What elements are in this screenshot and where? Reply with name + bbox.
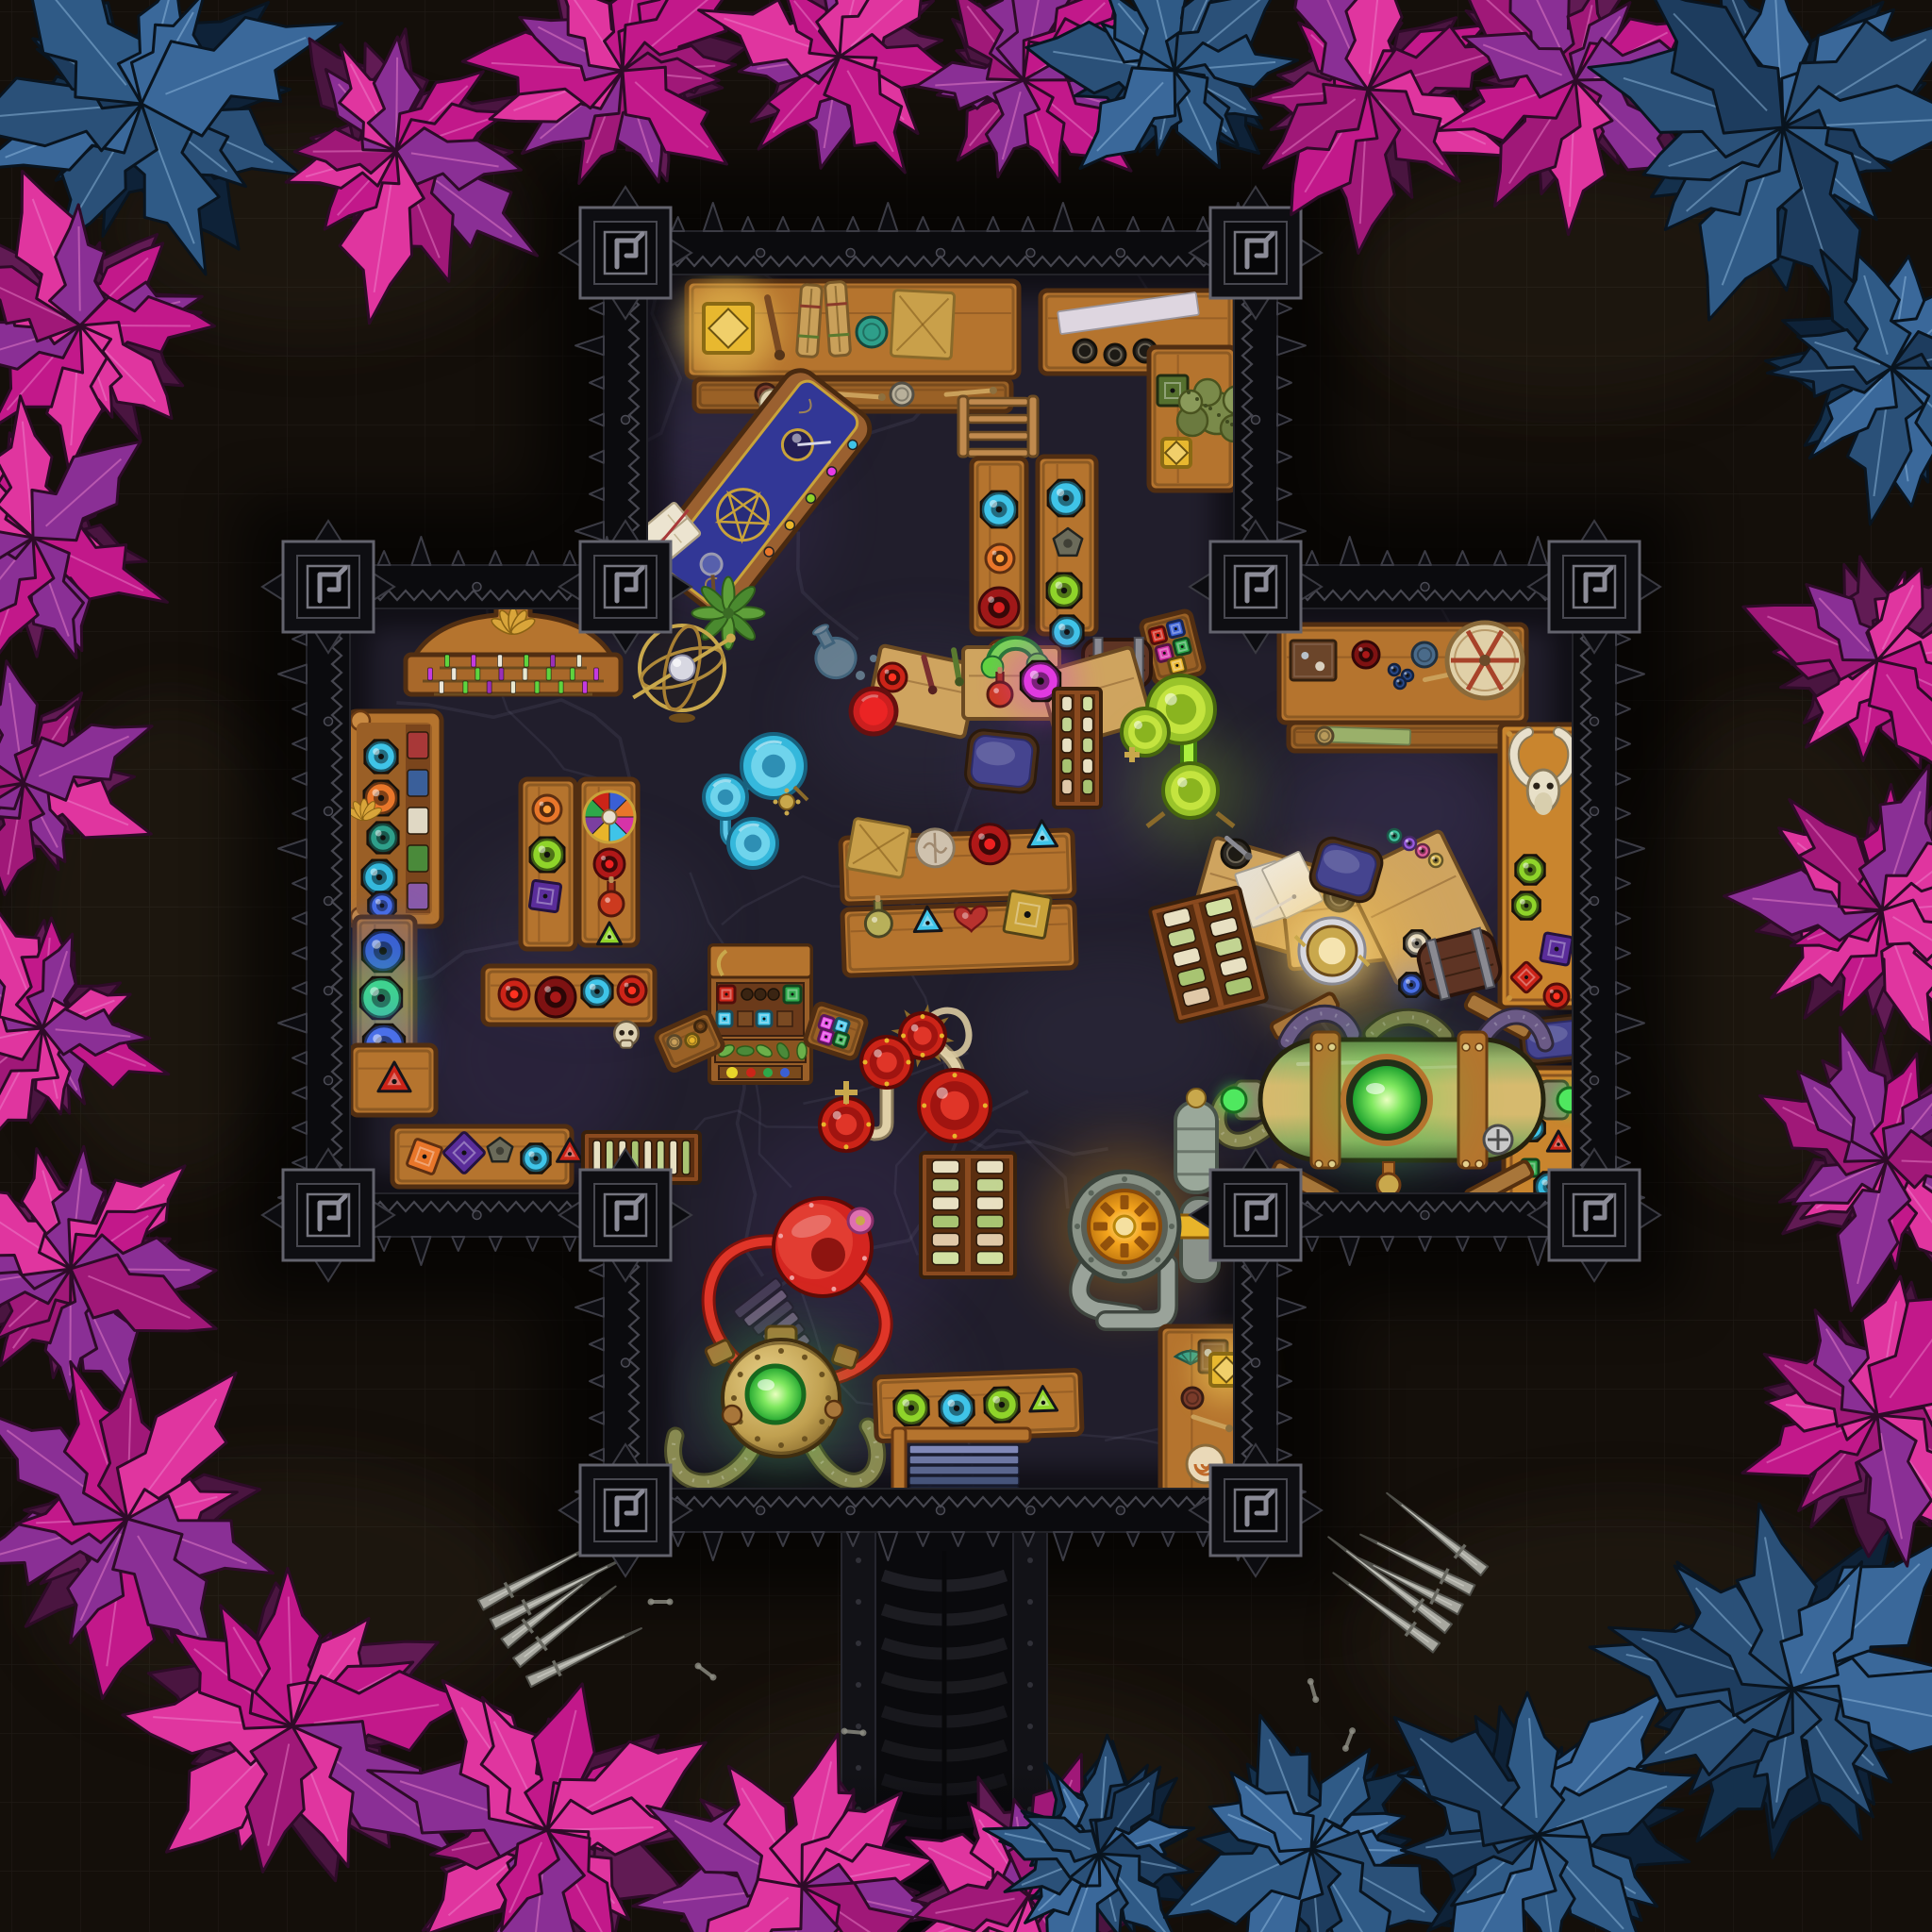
corner-pillar (559, 1149, 691, 1281)
curio-shelf (345, 711, 441, 926)
tube-rack-a (1054, 689, 1101, 808)
workbench-east (1279, 623, 1526, 723)
corner-pillar (1528, 521, 1660, 653)
corner-pillar (262, 1149, 394, 1281)
corner-pillar (262, 521, 394, 653)
display-table-a (972, 458, 1026, 665)
corner-pillar (1190, 1444, 1322, 1576)
display-table-b (1038, 457, 1096, 649)
corner-pillar (559, 521, 691, 653)
tube-cabinet (921, 1153, 1015, 1277)
corner-pillar (559, 1444, 691, 1576)
corner-pillar (1528, 1149, 1660, 1281)
apothecary-cabinet (709, 945, 811, 1083)
bell-table-west (483, 966, 655, 1024)
amulet-table-sw (392, 1126, 583, 1187)
battlemap-canvas (0, 0, 1932, 1932)
display-table-d (579, 779, 638, 945)
corner-pillar (1190, 521, 1322, 653)
display-table-c (521, 779, 575, 949)
battlemap-alchemist-workshop (0, 0, 1932, 1932)
small-table-w (351, 1045, 436, 1115)
workbench-east-lower (1289, 723, 1515, 751)
corner-pillar (1190, 1149, 1322, 1281)
corner-pillar (559, 187, 691, 319)
cushion-1 (964, 728, 1040, 793)
workbench-north (679, 279, 1019, 377)
